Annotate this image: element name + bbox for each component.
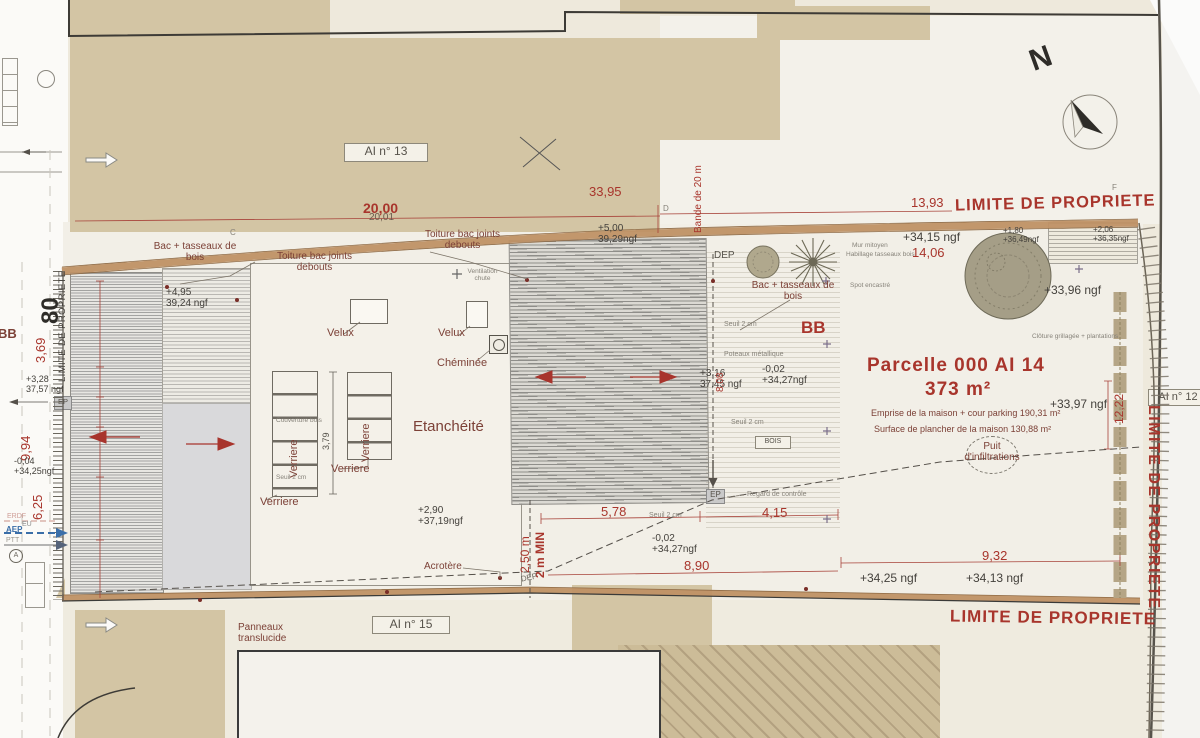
elev-34-15: +34,15 ngf [903,231,960,244]
bac-tasseaux-label: Bac + tasseaux de bois [140,241,250,263]
panneaux-label: Panneaux translucide [238,622,286,644]
dim-4-15: 4,15 [762,506,787,521]
velux-label: Velux [327,327,354,339]
elev-minus-002-low: -0,02 +34,27ngf [652,533,697,555]
utility-cabinet-divider [25,583,43,584]
elev-2-06: +2,06 +36,35ngf [1093,226,1129,244]
point-label-d: D [663,205,669,214]
elev-33-96: +33,96 ngf [1044,284,1101,297]
dim-3-79: 3,79 [321,432,331,450]
dep-top-label: DEP [714,250,735,261]
elev-34-25: +34,25 ngf [860,572,917,585]
scale-ruler [2,58,18,126]
dim-8-90: 8,90 [684,559,709,574]
spot-encastre-label: Spot encastré [850,282,890,289]
regard-controle-label: Regard de contrôle [747,491,807,499]
aep-label: AEP [6,526,22,535]
bande-20m-label: Bande de 20 m [693,165,704,233]
parcel-box-ai12: AI n° 12 [1148,389,1200,406]
habillage-label: Habillage tasseaux bois [846,251,915,258]
bb-marker-left: BB [0,327,17,342]
photo-right-margin [1162,0,1200,738]
toiture-joints-label: Toiture bac joints debouts [410,229,515,251]
cheminee-label: Chéminée [437,357,487,369]
dim-6-25: 6,25 [31,495,46,520]
neighbour-block [70,38,780,140]
acrotere-label: Acrotère [424,561,462,572]
point-label-f: F [1112,184,1117,193]
elev-4-95: +4,95 39,24 ngf [166,287,208,309]
cloture-label: Clôture grillagée + plantations [1032,333,1132,340]
verriere-label: Verriere [331,463,370,475]
parcel-area: 373 m² [925,379,991,400]
velux-window [466,301,488,328]
neighbour-block [75,610,225,738]
eu-label: EU [22,521,32,529]
puit-infiltrations-label: Puit d'infiltrations [953,441,1031,463]
elev-3-28: +3,28 37,57 ngf [26,374,64,394]
limite-propriete-right: LIMITE DE PROPRIETE [1144,405,1162,610]
parcel-title: Parcelle 000 AI 14 [867,355,1045,376]
dim-2-50m: 2,50 m [519,536,532,573]
mur-mitoyen-label: Mur mitoyen [852,242,888,249]
toiture-joints-label: Toiture bac joints debouts [262,251,367,273]
elev-34-13: +34,13 ngf [966,572,1023,585]
couverture-bois-label: Couverture bois [276,417,322,424]
chimney-cap [493,339,505,351]
parcel-emprise: Emprise de la maison + cour parking 190,… [871,408,1060,418]
seuil-label: Seuil 2 cm [724,321,757,329]
manhole-icon [37,70,55,88]
utility-cabinet [25,562,45,608]
seuil-label: Seuil 2 cm [276,474,306,481]
dim-3-69: 3,69 [34,338,49,363]
point-label-c: C [230,229,236,238]
limite-propriete-left: LIMITE DE PROPRIETE [58,270,69,382]
elev-33-97: +33,97 ngf [1050,398,1107,411]
elev-minus-004: -0,04 +34,25ngf [14,456,54,476]
poteaux-label: Poteaux métallique [724,351,784,359]
etancheite-label: Etanchéité [413,419,484,436]
point-a-circle: A [9,549,23,563]
dim-9-32: 9,32 [982,549,1007,564]
dim-12-22: 12,22 [1113,394,1126,424]
road-number-80: 80 [38,297,65,324]
bois-box: BOIS [755,436,791,449]
ep-box-left: EP [54,396,72,410]
dim-33-95: 33,95 [589,185,622,200]
ptt-label: PTT [6,537,19,545]
seuil-label: Seuil 2 cm [649,512,682,520]
dim-20-01: 20,01 [369,212,394,223]
bac-tasseaux-label: Bac + tasseaux de bois [738,280,848,302]
verriere-label: Verriere [360,423,372,462]
roof-west-wing [70,272,164,594]
elev-1-80: +1,80 +36,49ngf [1003,227,1039,245]
dim-5-78: 5,78 [601,505,626,520]
neighbour-hatched-block [618,645,940,738]
neighbour-block [757,6,930,40]
roof-central [509,238,710,505]
parcel-surface: Surface de plancher de la maison 130,88 … [874,424,1051,434]
seuil-label: Seuil 2 cm [731,419,764,427]
velux-label: Velux [438,327,465,339]
dim-14-06: 14,06 [912,246,945,261]
elev-2-90: +2,90 +37,19ngf [418,505,463,527]
garage-block [162,403,252,590]
site-plan-photo: EP EP BOIS AI n° 13 AI n° 15 AI n° 12 [0,0,1200,738]
dim-13-93: 13,93 [911,196,944,211]
ventilation-label: Ventilation chute [460,268,505,283]
dim-2m-min: 2 m MIN [534,532,547,578]
parcel-box-ai13: AI n° 13 [344,143,428,162]
erdf-label: ERDF [7,513,26,521]
dim-8-08: 8,08 [715,373,726,392]
building-outline-bottom [237,650,661,738]
velux-window [350,299,388,324]
verriere-label: Verriere [260,496,299,508]
neighbour-block [70,0,330,40]
bb-marker-right: BB [801,318,826,337]
elev-5-00: +5,00 39,29ngf [598,223,637,245]
elev-minus-002-up: -0,02 +34,27ngf [762,364,807,386]
ep-box-mid: EP [706,489,725,504]
limite-propriete-bottom: LIMITE DE PROPRIETE [950,607,1156,629]
parcel-box-ai15: AI n° 15 [372,616,450,634]
verriere-label: Verriere [288,439,300,478]
